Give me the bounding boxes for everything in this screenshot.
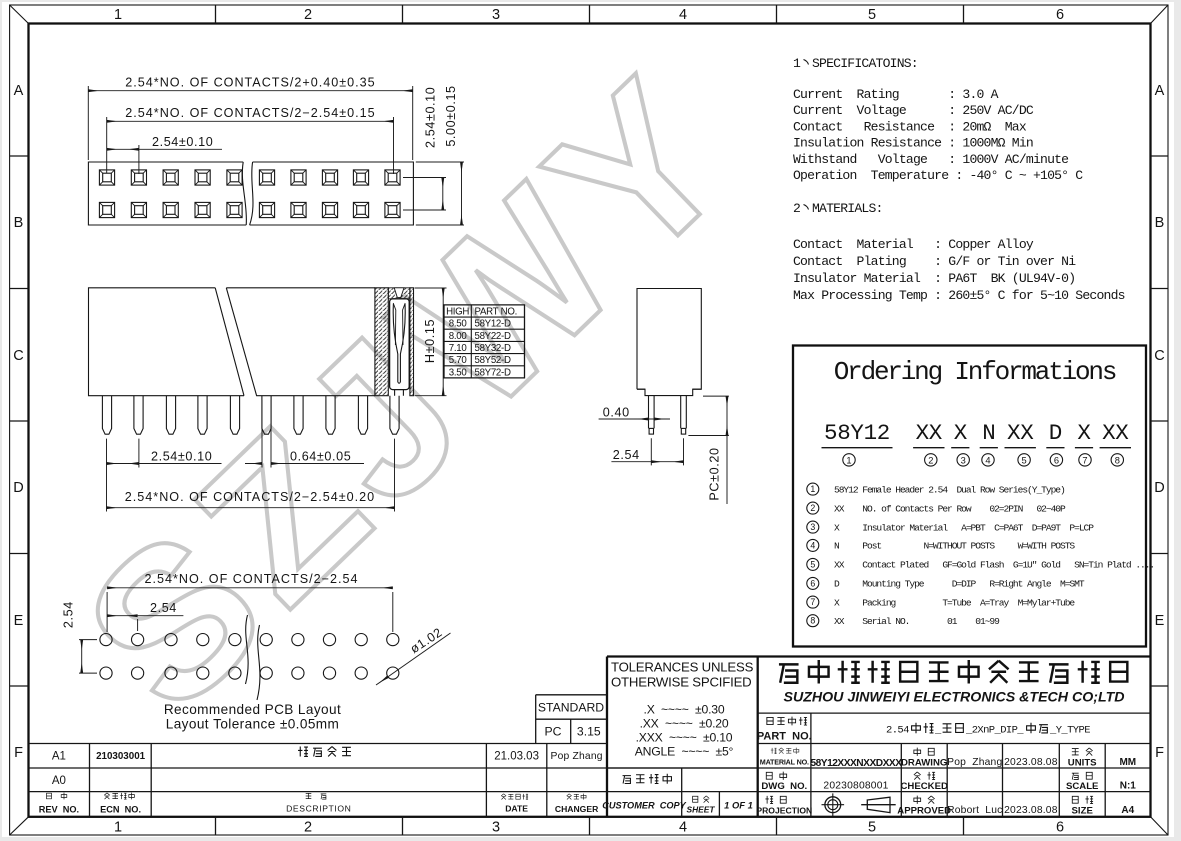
svg-text:2.54±0.10: 2.54±0.10 xyxy=(424,87,438,148)
svg-text:OTHERWISE SPCIFIED: OTHERWISE SPCIFIED xyxy=(611,675,752,690)
svg-text:APPROVED: APPROVED xyxy=(897,806,951,817)
svg-text:PART NO.: PART NO. xyxy=(757,731,812,743)
svg-text:0.64±0.05: 0.64±0.05 xyxy=(290,450,351,464)
svg-text:8.50: 8.50 xyxy=(449,319,468,330)
svg-text:3: 3 xyxy=(961,455,966,465)
svg-text:7: 7 xyxy=(810,597,815,607)
svg-text:Robort Luc: Robort Luc xyxy=(947,805,1002,816)
svg-text:7.10: 7.10 xyxy=(449,343,468,354)
svg-text:X: X xyxy=(954,420,968,446)
svg-text:NO. of Contacts Per Row 02=: NO. of Contacts Per Row 02=2PIN 02~40P xyxy=(862,503,1066,514)
svg-text:Contact Material : Copper A: Contact Material : Copper Alloy xyxy=(793,237,1034,252)
svg-text:2023.08.08: 2023.08.08 xyxy=(1004,757,1058,768)
svg-text:A0: A0 xyxy=(52,775,66,787)
svg-text:PROJECTION: PROJECTION xyxy=(756,806,812,816)
svg-text:Current Voltage : 250V A: Current Voltage : 250V AC/DC xyxy=(793,103,1034,118)
svg-text:SCALE: SCALE xyxy=(1066,781,1099,792)
svg-text:1 OF 1: 1 OF 1 xyxy=(724,800,753,811)
svg-text:2.54: 2.54 xyxy=(62,601,76,628)
svg-text:1: 1 xyxy=(114,7,122,23)
svg-text:CUSTOMER COPY: CUSTOMER COPY xyxy=(602,801,686,811)
svg-text:20230808001: 20230808001 xyxy=(823,781,888,792)
svg-text:58Y52-D: 58Y52-D xyxy=(475,355,511,366)
svg-text:_2XnP_DIP_: _2XnP_DIP_ xyxy=(965,725,1024,737)
svg-text:4: 4 xyxy=(985,455,990,465)
svg-text:MATERIAL NO.: MATERIAL NO. xyxy=(760,758,809,767)
svg-text:58Y12XXXNXXDXXX: 58Y12XXXNXXDXXX xyxy=(810,758,902,769)
svg-text:TOLERANCES UNLESS: TOLERANCES UNLESS xyxy=(611,660,754,675)
svg-text:Packing T=Tube A=Tra: Packing T=Tube A=Tray M=Mylar+Tube xyxy=(862,597,1075,608)
svg-text:Contact Plating : G/F or T: Contact Plating : G/F or Tin over Ni xyxy=(793,254,1076,269)
svg-text:.XX ~~~~ ±0.20: .XX ~~~~ ±0.20 xyxy=(640,717,729,731)
svg-text:8.00: 8.00 xyxy=(449,331,468,342)
svg-text:D: D xyxy=(13,480,23,496)
svg-text:58Y72-D: 58Y72-D xyxy=(475,367,511,378)
svg-text:Pop Zhang: Pop Zhang xyxy=(947,757,1002,768)
svg-text:PC±0.20: PC±0.20 xyxy=(708,447,722,500)
svg-text:SHEET: SHEET xyxy=(687,805,716,815)
svg-text:B: B xyxy=(1155,215,1165,231)
svg-text:CHECKED: CHECKED xyxy=(900,781,948,792)
svg-text:DESCRIPTION: DESCRIPTION xyxy=(286,804,351,814)
svg-text:N: N xyxy=(982,420,995,446)
svg-text:8: 8 xyxy=(810,616,815,626)
svg-text:H±0.15: H±0.15 xyxy=(423,319,437,363)
svg-text:1: 1 xyxy=(846,455,851,465)
svg-text:XX: XX xyxy=(834,503,845,514)
svg-text:_Y_TYPE: _Y_TYPE xyxy=(1049,725,1090,737)
svg-text:1: 1 xyxy=(793,56,801,71)
svg-text:2: 2 xyxy=(304,7,312,23)
svg-text:1: 1 xyxy=(810,484,815,494)
svg-text:UNITS: UNITS xyxy=(1068,758,1097,769)
svg-text:58Y12: 58Y12 xyxy=(824,420,890,446)
svg-text:3: 3 xyxy=(492,7,500,23)
svg-text:SPECIFICATOINS:: SPECIFICATOINS: xyxy=(812,56,918,71)
svg-text:4: 4 xyxy=(810,540,815,550)
svg-text:2: 2 xyxy=(793,201,800,216)
svg-text:8: 8 xyxy=(1115,455,1120,465)
svg-text:Ordering Informations: Ordering Informations xyxy=(834,357,1116,387)
svg-text:58Y12: 58Y12 xyxy=(834,484,859,495)
svg-text:E: E xyxy=(1155,613,1165,629)
svg-text:2.54: 2.54 xyxy=(613,448,640,462)
svg-text:Recommended PCB Layout: Recommended PCB Layout xyxy=(164,702,341,717)
svg-text:2: 2 xyxy=(810,503,815,513)
svg-text:3.15: 3.15 xyxy=(577,725,601,739)
svg-text:2: 2 xyxy=(304,820,312,836)
svg-text:Female Header 2.54 Dual Row S: Female Header 2.54 Dual Row Series(Y_Typ… xyxy=(862,484,1065,495)
svg-text:A: A xyxy=(1155,83,1165,99)
svg-text:XX: XX xyxy=(916,420,943,446)
svg-text:HIGH: HIGH xyxy=(446,307,469,318)
svg-text:.X ~~~~ ±0.30: .X ~~~~ ±0.30 xyxy=(644,703,725,717)
svg-text:DATE: DATE xyxy=(505,804,528,814)
svg-text:D: D xyxy=(1154,480,1164,496)
svg-text:F: F xyxy=(14,745,23,761)
svg-text:.XXX ~~~~ ±0.10: .XXX ~~~~ ±0.10 xyxy=(636,731,733,745)
svg-text:210303001: 210303001 xyxy=(96,751,146,762)
svg-text:XX: XX xyxy=(1102,420,1129,446)
svg-text:Max Processing Temp : 260±5° C: Max Processing Temp : 260±5° C for 5~10 … xyxy=(793,288,1125,303)
svg-text:5.00±0.15: 5.00±0.15 xyxy=(444,85,458,146)
svg-text:3: 3 xyxy=(492,820,500,836)
svg-text:21.03.03: 21.03.03 xyxy=(494,751,539,763)
svg-text:DWG NO.: DWG NO. xyxy=(761,781,807,792)
svg-text:6: 6 xyxy=(810,578,815,588)
svg-text:5: 5 xyxy=(868,7,876,23)
svg-text:STANDARD: STANDARD xyxy=(538,701,604,715)
svg-text:2.54±0.10: 2.54±0.10 xyxy=(152,135,213,149)
svg-text:D: D xyxy=(1049,420,1062,446)
svg-text:C: C xyxy=(1154,348,1164,364)
svg-text:6: 6 xyxy=(1054,455,1059,465)
svg-text:PART NO.: PART NO. xyxy=(475,307,517,318)
svg-text:F: F xyxy=(1155,745,1164,761)
svg-text:Pop Zhang: Pop Zhang xyxy=(551,751,603,762)
svg-text:REV NO.: REV NO. xyxy=(39,805,79,815)
svg-text:SUZHOU JINWEIYI ELECTRONICS &T: SUZHOU JINWEIYI ELECTRONICS &TECH CO;LTD xyxy=(783,690,1124,706)
svg-text:6: 6 xyxy=(1056,7,1064,23)
svg-text:3.50: 3.50 xyxy=(449,367,468,378)
svg-text:MATERIALS:: MATERIALS: xyxy=(812,201,883,216)
svg-text:Insulator Material A=PBT C=: Insulator Material A=PBT C=PA6T D=PA9T P… xyxy=(862,522,1094,533)
svg-text:4: 4 xyxy=(679,820,687,836)
svg-text:6: 6 xyxy=(1056,820,1064,836)
svg-text:DRAWING: DRAWING xyxy=(901,758,947,769)
svg-text:5: 5 xyxy=(810,559,815,569)
svg-text:2: 2 xyxy=(928,455,933,465)
svg-text:E: E xyxy=(14,613,24,629)
svg-text:N: N xyxy=(834,541,839,552)
svg-text:2.54*NO. OF CONTACTS/2−2.54: 2.54*NO. OF CONTACTS/2−2.54 xyxy=(145,572,359,586)
svg-text:ANGLE ~~~~ ±5°: ANGLE ~~~~ ±5° xyxy=(635,745,734,759)
svg-text:2.54: 2.54 xyxy=(150,601,177,615)
svg-text:A: A xyxy=(14,83,24,99)
svg-text:A1: A1 xyxy=(52,751,66,763)
svg-text:7: 7 xyxy=(1082,455,1087,465)
svg-text:C: C xyxy=(13,348,23,364)
svg-text:Withstand Voltage : 1000V: Withstand Voltage : 1000V AC/minute xyxy=(793,152,1068,167)
svg-text:5.70: 5.70 xyxy=(449,355,468,366)
svg-text:Current Rating : 3.0 A: Current Rating : 3.0 A xyxy=(793,87,999,102)
svg-text:XX: XX xyxy=(834,616,845,627)
svg-text:58Y22-D: 58Y22-D xyxy=(475,331,511,342)
svg-text:Contact Plated GF=Gold Flash: Contact Plated GF=Gold Flash G=1U" Gold … xyxy=(862,560,1154,571)
svg-text:2023.08.08: 2023.08.08 xyxy=(1004,805,1058,816)
svg-text:2.54*NO. OF CONTACTS/2+0.40±0.: 2.54*NO. OF CONTACTS/2+0.40±0.35 xyxy=(125,76,375,90)
svg-text:3: 3 xyxy=(810,522,815,532)
svg-text:A4: A4 xyxy=(1121,805,1134,816)
svg-text:B: B xyxy=(14,215,24,231)
svg-text:Insulator Material : PA6T BK: Insulator Material : PA6T BK (UL94V-0) xyxy=(793,271,1075,286)
svg-text:CHANGER: CHANGER xyxy=(555,804,599,814)
svg-text:PC: PC xyxy=(545,725,562,739)
svg-text:1: 1 xyxy=(114,820,122,836)
svg-text:Mounting Type D=DIP R=R: Mounting Type D=DIP R=Right Angle M=SMT xyxy=(862,579,1085,590)
svg-text:5: 5 xyxy=(1022,455,1027,465)
svg-text:Serial NO. 01 01~99: Serial NO. 01 01~99 xyxy=(862,616,1000,627)
svg-text:X: X xyxy=(1077,420,1091,446)
svg-text:SIZE: SIZE xyxy=(1072,806,1094,817)
svg-text:58Y32-D: 58Y32-D xyxy=(475,343,511,354)
svg-text:2.54*NO. OF CONTACTS/2−2.54±0.: 2.54*NO. OF CONTACTS/2−2.54±0.20 xyxy=(125,490,375,504)
svg-text:4: 4 xyxy=(679,7,687,23)
svg-text:2.54: 2.54 xyxy=(886,725,909,737)
svg-text:Layout Tolerance ±0.05mm: Layout Tolerance ±0.05mm xyxy=(166,717,339,732)
svg-text:Contact Resistance : 20mΩ: Contact Resistance : 20mΩ Max xyxy=(793,119,1027,134)
svg-text:Operation Temperature : -40°: Operation Temperature : -40° C ~ +105° C xyxy=(793,168,1083,183)
svg-text:5: 5 xyxy=(868,820,876,836)
svg-text:2.54±0.10: 2.54±0.10 xyxy=(151,450,212,464)
svg-text:Insulation Resistance : 1000MΩ: Insulation Resistance : 1000MΩ Min xyxy=(793,136,1033,151)
svg-text:N:1: N:1 xyxy=(1120,781,1137,792)
svg-text:58Y12-D: 58Y12-D xyxy=(475,319,511,330)
svg-text:XX: XX xyxy=(834,560,845,571)
svg-text:XX: XX xyxy=(1007,420,1034,446)
svg-text:ECN NO.: ECN NO. xyxy=(100,805,141,815)
svg-text:2.54*NO. OF CONTACTS/2−2.54±0.: 2.54*NO. OF CONTACTS/2−2.54±0.15 xyxy=(125,106,375,120)
svg-text:Post N=WITHOUT POSTS: Post N=WITHOUT POSTS W=WITH POSTS xyxy=(862,541,1075,552)
svg-text:0.40: 0.40 xyxy=(603,406,630,420)
svg-text:MM: MM xyxy=(1119,757,1136,768)
